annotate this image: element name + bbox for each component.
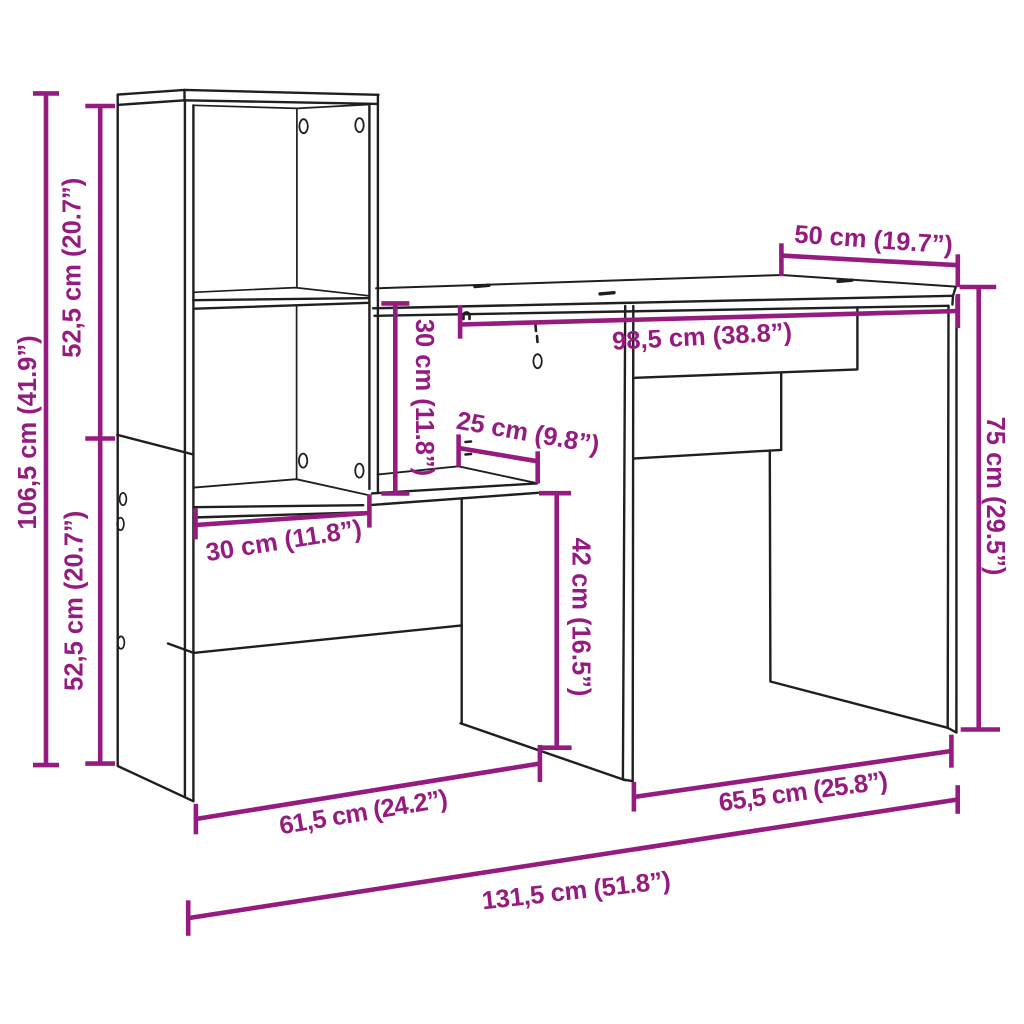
svg-text:106,5 cm (41.9”): 106,5 cm (41.9”) — [14, 335, 42, 529]
svg-text:52,5 cm (20.7”): 52,5 cm (20.7”) — [61, 511, 89, 691]
svg-text:42 cm (16.5”): 42 cm (16.5”) — [567, 538, 595, 697]
svg-text:30 cm (11.8”): 30 cm (11.8”) — [410, 319, 438, 476]
svg-text:52,5 cm (20.7”): 52,5 cm (20.7”) — [59, 178, 87, 358]
svg-text:75 cm (29.5”): 75 cm (29.5”) — [981, 417, 1009, 576]
